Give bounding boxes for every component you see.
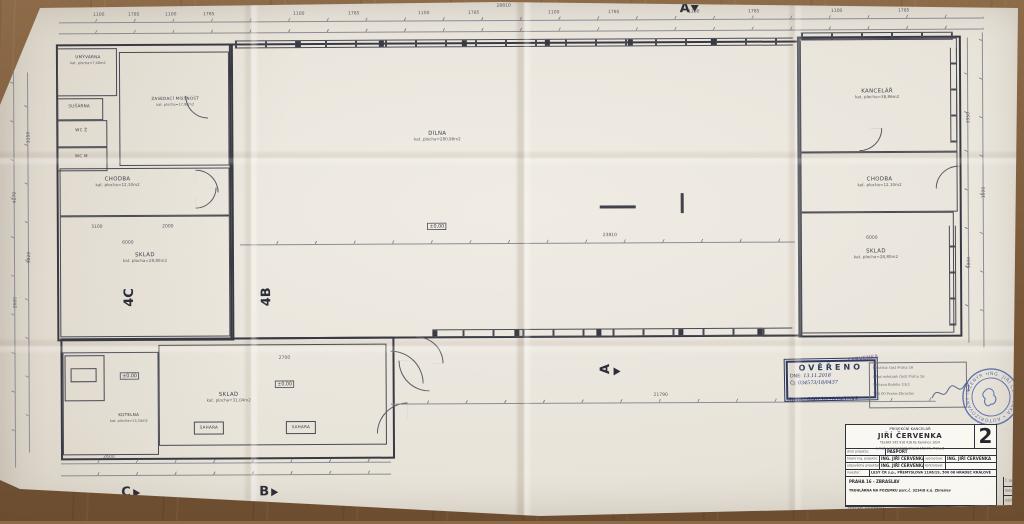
dim-number: 1100 (293, 11, 304, 16)
column (432, 330, 437, 336)
section-marker-4b: 4B (259, 287, 274, 306)
sahara-heater-2: SAHARA (286, 421, 316, 434)
label-chodba-left: CHODBAkat. plocha=12,10m2 (85, 175, 150, 188)
dim-number: 21790 (654, 392, 668, 397)
location-line: PRAHA 16 - ZBRASLAV (849, 480, 972, 485)
svg-text:ING. JIŘÍ ČERVENKA • AUTORIZOV: ING. JIŘÍ ČERVENKA • AUTORIZOVANÝ INŽENÝ… (960, 368, 1020, 427)
r3a-value: ING. JIŘÍ ČERVENKA (881, 464, 924, 469)
r4-label: investor: (847, 471, 861, 475)
section-marker-4c: 4C (122, 288, 137, 307)
right-wing-north-window-band (801, 32, 953, 41)
designer-tel: TELFAX 245 916 416 (880, 441, 912, 445)
level-mark-hall: ±0,00 (427, 223, 447, 230)
room-sklad-bottom (158, 344, 387, 446)
office-line-3: Václava Balého 23/3 (873, 382, 938, 389)
label-sklad-bottom: SKLADkat. plocha=31,04m2 (196, 391, 261, 404)
dim-number: 2000 (162, 224, 173, 229)
project-title-line: TRUHLÁRNA NA POZEMKU parc.č. 3234/8 k.ú.… (849, 489, 951, 493)
dim-number: 5800 (966, 257, 971, 268)
column (296, 41, 301, 47)
dim-number: 1785 (898, 8, 909, 13)
dim-number: 1785 (608, 9, 619, 14)
dim-number: 1100 (93, 12, 104, 17)
dim-number: 1785 (203, 11, 214, 16)
dim-number: 1000 (981, 187, 986, 198)
column (379, 41, 384, 47)
section-arrow-a-icon (614, 367, 621, 375)
office-type: PROJEKČNÍ KANCELÁŘ (862, 427, 958, 432)
office-line-4: 153 00 Praha-Zbraslav (873, 390, 938, 397)
dim-number: 6000 (122, 240, 133, 245)
dim-number: 1100 (688, 9, 699, 14)
dim-chain-left-1 (10, 58, 16, 468)
section-marker-a: A (598, 364, 613, 374)
designer-addr2: 153 00, Praha 5 (920, 447, 945, 451)
section-arrow-b-icon (271, 488, 278, 496)
column (757, 329, 762, 335)
hall-stub-wall-v (681, 193, 684, 213)
r2a-label: hlavní ing. projektu: (847, 457, 878, 461)
dim-number: 28810 (496, 3, 510, 8)
title-block-header: PROJEKČNÍ KANCELÁŘ JIŘÍ ČERVENKA TELFAX … (846, 425, 996, 449)
column (514, 330, 519, 336)
right-sklad-east-window-band (949, 226, 957, 326)
overeno-title: OVĚŘENO (790, 362, 872, 372)
overeno-cj-label: ČJ: (790, 380, 796, 386)
door-arc-hall-south (416, 336, 443, 363)
dim-number: 1100 (831, 8, 842, 13)
office-line-1: Městská část Praha 16 (873, 365, 938, 372)
dim-number: 1785 (748, 9, 759, 14)
right-wing-east-window-band (950, 48, 957, 143)
dim-number: 4170 (12, 192, 17, 203)
room-sklad-left (60, 215, 231, 337)
workshop-hall-outline (229, 40, 803, 339)
dim-number: 1950 (966, 112, 971, 123)
r1-label: druh projektu: (847, 450, 869, 454)
column (462, 40, 467, 46)
sahara-heater-1: SAHARA (194, 422, 224, 435)
column (678, 329, 683, 335)
blueprint-paper: SAHARA SAHARA (0, 0, 1024, 521)
room-sklad-right (800, 212, 955, 334)
label-sklad-right: SKLADkat. plocha=28,80m2 (843, 247, 908, 260)
dim-number: 1150 (26, 132, 31, 143)
logo-numeral-2: 2 (974, 425, 996, 448)
dim-number: 23810 (603, 232, 617, 237)
title-block: PROJEKČNÍ KANCELÁŘ JIŘÍ ČERVENKA TELFAX … (845, 424, 997, 507)
overeno-dne-value: 13.11.2018 (803, 373, 831, 379)
dim-number: 3100 (91, 224, 102, 229)
project-location-cell: PRAHA 16 - ZBRASLAV TRUHLÁRNA NA POZEMKU… (846, 477, 1004, 505)
dim-chain-bottom-annex-1 (61, 459, 391, 465)
dim-chain-right-1 (964, 38, 970, 343)
label-zasedaci: ZASEDACÍ MÍSTNOSTkat. plocha=17,98m2 (140, 95, 210, 108)
label-umyvarna: UMÝVÁRNAkat. plocha=7,40m2 (57, 54, 118, 67)
label-chodba-right: CHODBAkat. plocha=12,10m2 (847, 175, 912, 188)
r3a-label: odpovědný projektant: (847, 464, 880, 468)
door-arc-annex-2 (399, 360, 430, 391)
dim-number: 1100 (418, 10, 429, 15)
dim-number: 2600 (103, 454, 114, 459)
label-kancelar: KANCELÁŘkat. plocha=38,86m2 (845, 87, 910, 100)
column (596, 330, 601, 336)
dim-number: 1100 (548, 10, 559, 15)
hall-stub-wall-h (600, 205, 636, 208)
spzn-handwriting: Sp.zn.: 066138/18/0437/Vš (788, 396, 858, 403)
dim-chain-bottom-annex-2 (61, 471, 391, 477)
photo-of-floor-plan: { "drawing": { "type": "floor-plan", "ti… (0, 0, 1024, 521)
sahara-2-label: SAHARA (292, 425, 310, 430)
column (545, 40, 550, 46)
column (711, 39, 716, 45)
designer-addr1: Ke Kamínce 1024 (913, 441, 940, 445)
dim-number: 1785 (468, 10, 479, 15)
seal-text: ING. JIŘÍ ČERVENKA • AUTORIZOVANÝ INŽENÝ… (960, 368, 1020, 427)
dim-number: 1100 (165, 12, 176, 17)
office-line-2: Úřad městské části Praha 16 (873, 373, 938, 380)
label-wc-m: WC M (72, 153, 91, 160)
r2a-value: ING. JIŘÍ ČERVENKA (881, 457, 924, 462)
column (628, 39, 633, 45)
dim-number: 5820 (26, 252, 31, 263)
label-dilna: DÍLNAkat. plocha=280,96m2 (403, 130, 472, 143)
dim-number: 6000 (866, 235, 877, 240)
label-sklad-left: SKLADkat. plocha=28,80m2 (112, 251, 177, 264)
boiler-fixture (71, 368, 97, 382)
designer-name: JIŘÍ ČERVENKA (846, 432, 974, 440)
r4-value: LESY ČR s.p., PŘEMYSLOVA 1106/19, 500 08… (871, 471, 991, 475)
dim-number: 1785 (128, 12, 139, 17)
label-susarna: SUŠÁRNA (63, 103, 95, 110)
label-kotelna: KOTELNAkat. plocha=13,34m2 (96, 411, 161, 424)
level-mark-sklad-bottom: ±0,00 (275, 381, 295, 388)
overeno-stamp: OVĚŘENO DNE: 13.11.2018 ČJ: 034573/18/04… (786, 359, 877, 400)
level-mark-kotelna: ±0,00 (120, 372, 140, 379)
r2b-value: ING. JIŘÍ ČERVENKA (947, 457, 991, 462)
dim-number: 2600 (13, 297, 18, 308)
sahara-1-label: SAHARA (200, 425, 218, 430)
label-wc-z: WC Ž (72, 127, 90, 134)
seal-lion-emblem-icon (982, 388, 997, 406)
overeno-cj-value: 034573/18/0437 (798, 380, 838, 386)
room-zasedaci (119, 51, 230, 166)
r2b-label: vypracoval: (925, 457, 943, 461)
r3b-label: kontroloval: (925, 464, 943, 468)
dim-chain-top-1 (59, 15, 984, 24)
dim-number: 1785 (348, 11, 359, 16)
overeno-dne-label: DNE: (790, 373, 802, 379)
section-marker-b: B (259, 484, 269, 499)
r1-value: PASPORT (887, 450, 908, 455)
dim-number: 2700 (279, 355, 290, 360)
